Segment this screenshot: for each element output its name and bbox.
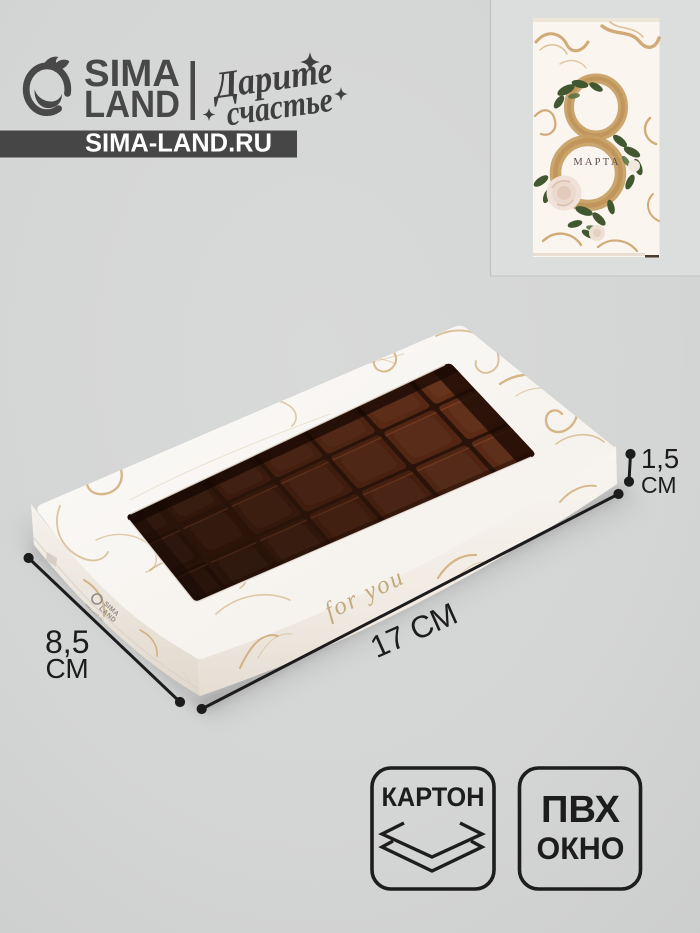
svg-text:ПВХ: ПВХ	[541, 789, 621, 831]
svg-text:МАРТА: МАРТА	[573, 157, 620, 168]
svg-text:SIMA-LAND.RU: SIMA-LAND.RU	[85, 130, 272, 158]
svg-text:ОКНО: ОКНО	[537, 830, 625, 866]
svg-text:1,5: 1,5	[641, 443, 679, 474]
svg-text:КАРТОН: КАРТОН	[382, 782, 485, 812]
svg-text:LAND: LAND	[84, 84, 180, 126]
svg-text:СМ: СМ	[46, 653, 89, 684]
svg-text:СМ: СМ	[641, 472, 677, 498]
